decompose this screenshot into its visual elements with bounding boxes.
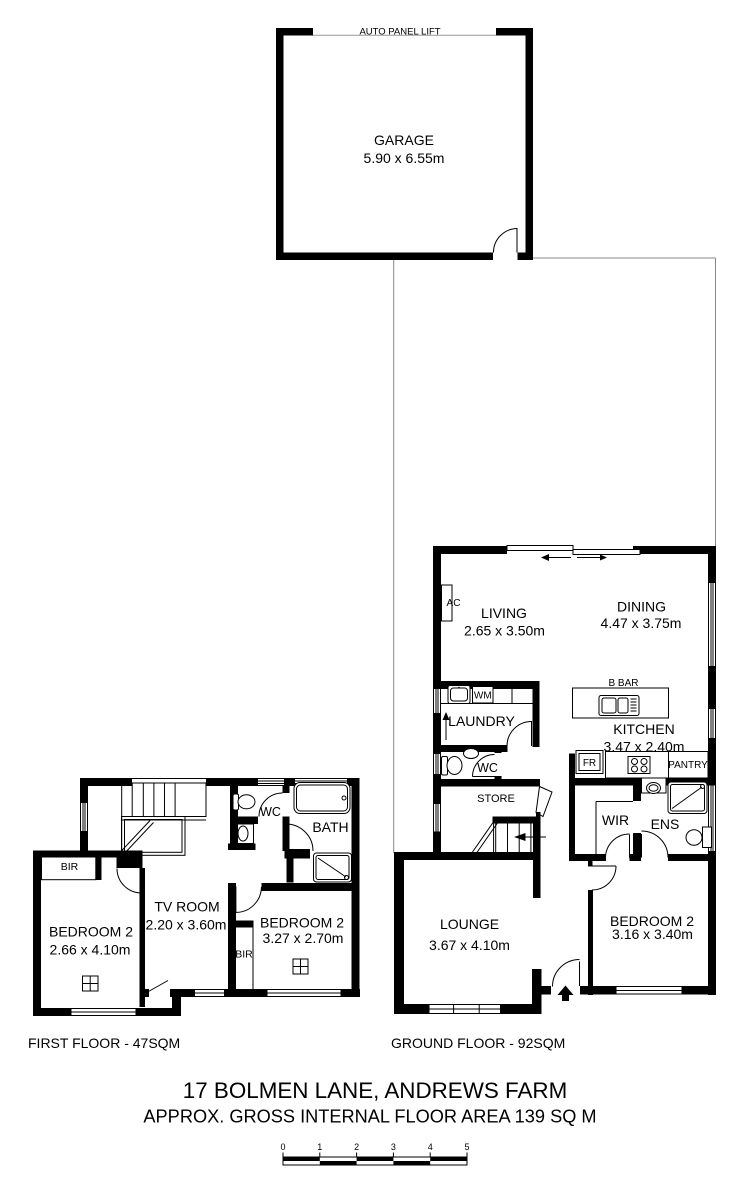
svg-text:5.90 x 6.55m: 5.90 x 6.55m (364, 150, 445, 166)
svg-text:2.20 x 3.60m: 2.20 x 3.60m (146, 917, 227, 933)
svg-text:0: 0 (280, 1142, 285, 1152)
svg-text:2.65 x 3.50m: 2.65 x 3.50m (464, 623, 545, 639)
svg-text:3.27 x 2.70m: 3.27 x 2.70m (263, 930, 344, 946)
svg-text:FIRST FLOOR - 47SQM: FIRST FLOOR - 47SQM (28, 1035, 180, 1051)
svg-text:BIR: BIR (235, 949, 253, 961)
svg-text:BEDROOM 2: BEDROOM 2 (260, 915, 344, 931)
svg-text:ENS: ENS (651, 816, 680, 832)
svg-text:3.16 x 3.40m: 3.16 x 3.40m (612, 926, 693, 942)
svg-text:LIVING: LIVING (481, 605, 527, 621)
svg-text:WM: WM (474, 691, 492, 702)
svg-text:3.67 x 4.10m: 3.67 x 4.10m (429, 937, 510, 953)
svg-text:BIR: BIR (61, 861, 79, 873)
svg-text:LOUNGE: LOUNGE (440, 916, 499, 932)
svg-text:KITCHEN: KITCHEN (613, 721, 674, 737)
svg-text:DINING: DINING (617, 599, 666, 615)
svg-text:GROUND FLOOR - 92SQM: GROUND FLOOR - 92SQM (391, 1035, 565, 1051)
svg-text:B BAR: B BAR (608, 678, 638, 689)
svg-text:BEDROOM 2: BEDROOM 2 (49, 924, 133, 940)
svg-text:2.66 x 4.10m: 2.66 x 4.10m (50, 942, 131, 958)
svg-text:AUTO PANEL LIFT: AUTO PANEL LIFT (359, 27, 440, 38)
svg-text:WIR: WIR (602, 812, 629, 828)
svg-text:WC: WC (260, 805, 281, 819)
svg-text:BATH: BATH (312, 819, 348, 835)
svg-text:17 BOLMEN LANE, ANDREWS FARM: 17 BOLMEN LANE, ANDREWS FARM (183, 1078, 567, 1103)
svg-text:4: 4 (428, 1142, 433, 1152)
svg-text:GARAGE: GARAGE (374, 132, 434, 148)
svg-text:2: 2 (354, 1142, 359, 1152)
svg-text:WC: WC (477, 761, 498, 775)
svg-text:APPROX. GROSS INTERNAL FLOOR A: APPROX. GROSS INTERNAL FLOOR AREA 139 SQ… (143, 1107, 596, 1127)
svg-text:PANTRY: PANTRY (668, 760, 708, 771)
svg-text:FR: FR (583, 758, 596, 769)
svg-text:TV ROOM: TV ROOM (154, 899, 219, 915)
svg-text:4.47 x 3.75m: 4.47 x 3.75m (601, 615, 682, 631)
svg-text:5: 5 (464, 1142, 469, 1152)
svg-text:AC: AC (447, 598, 461, 609)
svg-text:3: 3 (391, 1142, 396, 1152)
svg-text:LAUNDRY: LAUNDRY (448, 713, 515, 729)
svg-text:1: 1 (317, 1142, 322, 1152)
svg-text:STORE: STORE (477, 793, 515, 805)
